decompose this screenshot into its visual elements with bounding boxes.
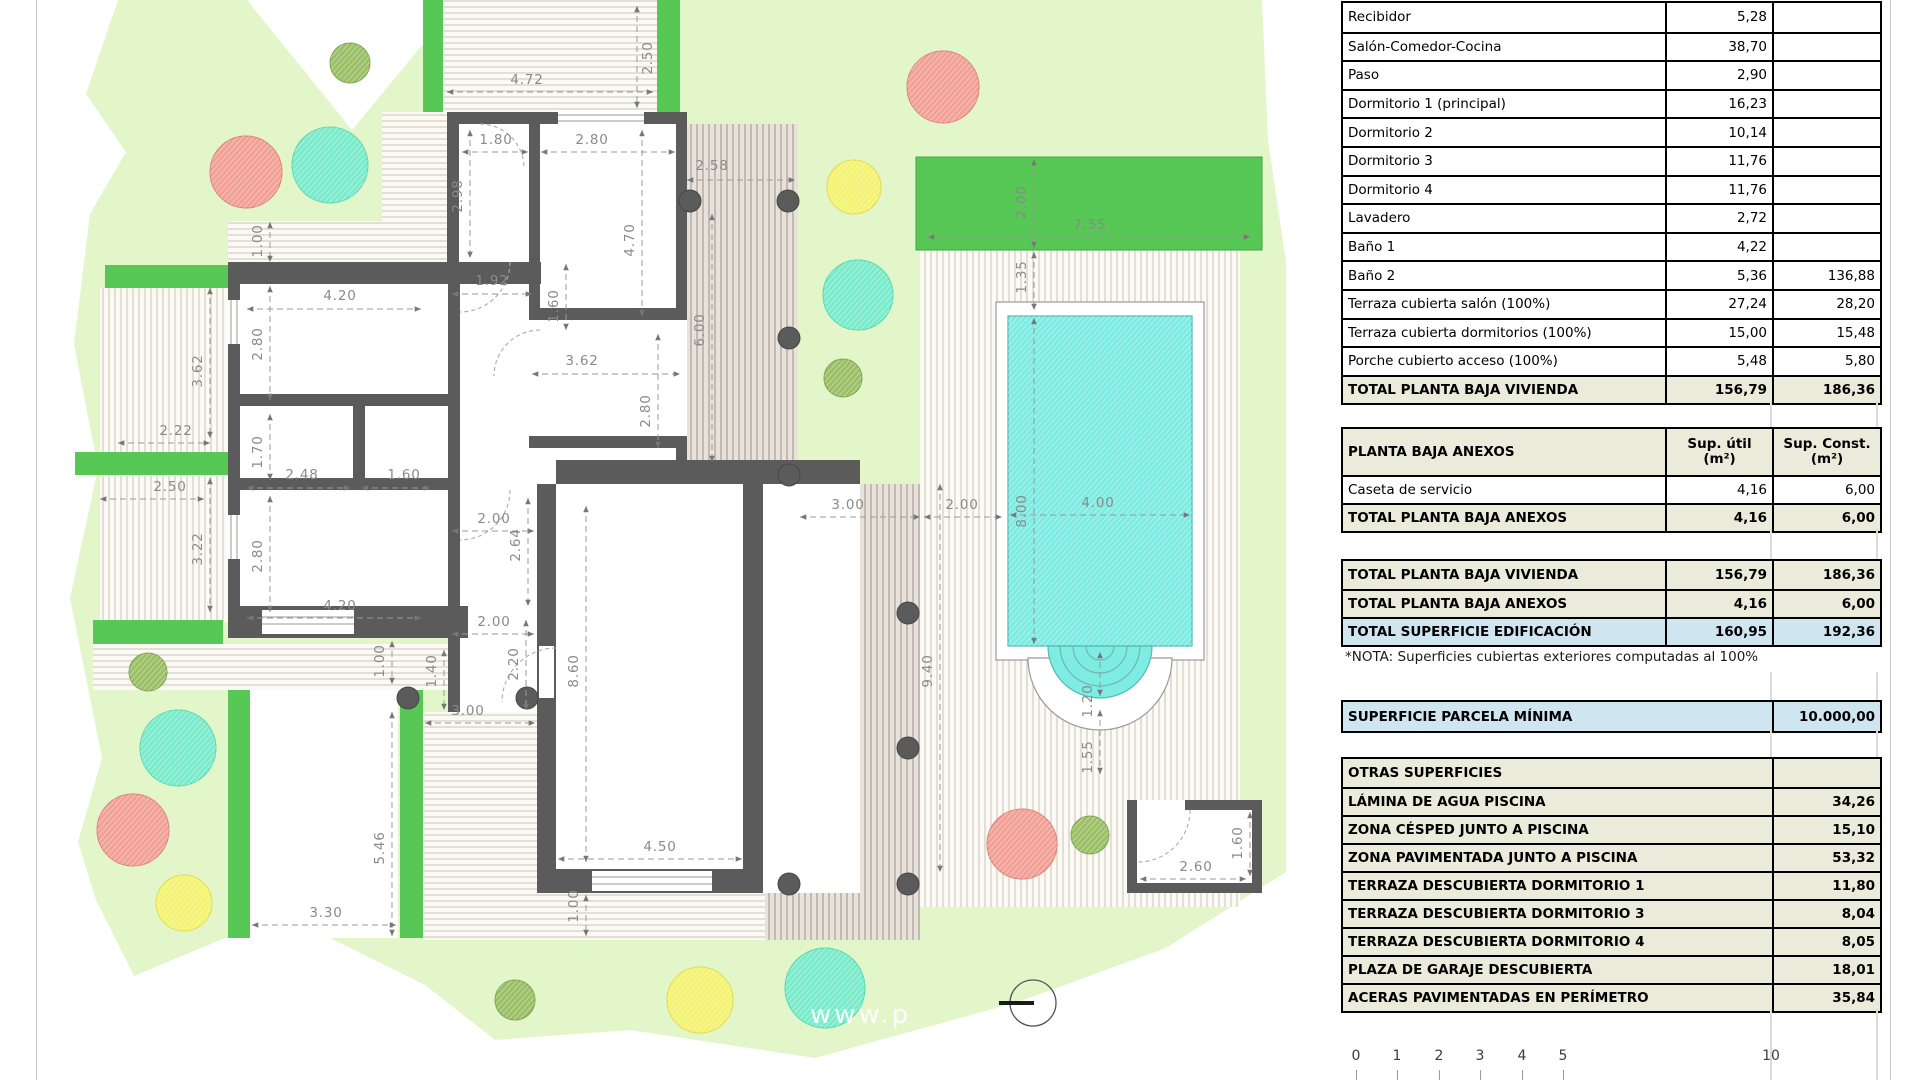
table-row: Recibidor5,28 (1343, 3, 1880, 32)
grid-line (1876, 529, 1878, 559)
dimension-label: 2.80 (250, 327, 266, 360)
frame-line-right (1890, 0, 1891, 1080)
grid-line (1876, 1009, 1878, 1080)
row-label: TOTAL PLANTA BAJA ANEXOS (1343, 591, 1665, 617)
grid-line (1770, 401, 1772, 427)
row-label: TOTAL SUPERFICIE EDIFICACIÓN (1343, 619, 1665, 645)
sup-const-value: 28,20 (1772, 291, 1880, 318)
scale-bar-tick: 2 (1427, 1048, 1451, 1064)
row-label: TERRAZA DESCUBIERTA DORMITORIO 4 (1343, 929, 1772, 955)
sup-util-value: 38,70 (1665, 34, 1772, 61)
dimension-label: 1.00 (372, 644, 388, 677)
sup-util-value: 2,72 (1665, 205, 1772, 232)
row-label: TERRAZA DESCUBIERTA DORMITORIO 1 (1343, 873, 1772, 899)
dimension-label: 2.98 (450, 179, 466, 212)
table-row: OTRAS SUPERFICIES (1343, 759, 1880, 787)
scale-bar-tick-mark (1480, 1070, 1481, 1080)
superficie-value: 34,26 (1772, 789, 1880, 815)
dimension-label: 3.30 (309, 905, 342, 921)
scale-bar-tick: 5 (1551, 1048, 1575, 1064)
table-row: Baño 25,36136,88 (1343, 260, 1880, 289)
dimension-label: 2.00 (945, 497, 978, 513)
table-planta-baja-vivienda: Recibidor5,28Salón-Comedor-Cocina38,70Pa… (1341, 1, 1882, 405)
grid-line (1876, 672, 1878, 700)
scale-bar-tick: 0 (1344, 1048, 1368, 1064)
scale-bar-tick-mark (1439, 1070, 1440, 1080)
row-label: SUPERFICIE PARCELA MÍNIMA (1343, 702, 1772, 731)
dimension-label: 2.50 (153, 479, 186, 495)
table-row: PLAZA DE GARAJE DESCUBIERTA18,01 (1343, 955, 1880, 983)
table-row: Terraza cubierta salón (100%)27,2428,20 (1343, 289, 1880, 318)
sup-util-value: 16,23 (1665, 91, 1772, 118)
sup-util-value: 4,16 (1665, 505, 1772, 531)
table-row: TOTAL PLANTA BAJA VIVIENDA156,79186,36 (1343, 561, 1880, 589)
dimension-label: 1.55 (1080, 740, 1096, 773)
row-label: Lavadero (1343, 205, 1665, 232)
row-label: Recibidor (1343, 3, 1665, 32)
sup-const-value: 6,00 (1772, 591, 1880, 617)
dimension-label: 2.00 (1014, 185, 1030, 218)
table-row: ACERAS PAVIMENTADAS EN PERÍMETRO35,84 (1343, 983, 1880, 1011)
sup-const-value (1772, 3, 1880, 32)
dimension-label: 2.50 (640, 41, 656, 74)
sup-util-value: 2,90 (1665, 62, 1772, 89)
dimension-label: 3.62 (565, 353, 598, 369)
sup-const-value (1772, 119, 1880, 146)
grid-line (1876, 729, 1878, 757)
sup-const-value: 186,36 (1772, 377, 1880, 404)
superficie-value: 15,10 (1772, 817, 1880, 843)
dimension-label: 1.60 (387, 467, 420, 483)
dimension-label: 2.80 (250, 539, 266, 572)
table-row: Dormitorio 210,14 (1343, 117, 1880, 146)
superficie-value (1772, 759, 1880, 787)
superficie-value: 11,80 (1772, 873, 1880, 899)
table-row: ZONA CÉSPED JUNTO A PISCINA15,10 (1343, 815, 1880, 843)
table-row: Paso2,90 (1343, 60, 1880, 89)
grid-line (1770, 672, 1772, 700)
superficie-value: 8,04 (1772, 901, 1880, 927)
dimension-label: 4.20 (323, 598, 356, 614)
superficie-value: 18,01 (1772, 957, 1880, 983)
dimension-label: 1.00 (250, 224, 266, 257)
parcela-value: 10.000,00 (1772, 702, 1880, 731)
scale-bar-tick-mark (1522, 1070, 1523, 1080)
superficie-value: 53,32 (1772, 845, 1880, 871)
sup-const-value: 15,48 (1772, 320, 1880, 347)
table-row: Dormitorio 1 (principal)16,23 (1343, 89, 1880, 118)
dimension-label: 4.20 (323, 288, 356, 304)
dimension-label: 8.60 (566, 654, 582, 687)
table-otras-superficies: OTRAS SUPERFICIESLÁMINA DE AGUA PISCINA3… (1341, 757, 1882, 1013)
scale-bar-tick-mark (1563, 1070, 1564, 1080)
row-label: Terraza cubierta salón (100%) (1343, 291, 1665, 318)
dimension-label: 9.40 (920, 654, 936, 687)
row-label: Terraza cubierta dormitorios (100%) (1343, 320, 1665, 347)
sup-const-value: 186,36 (1772, 561, 1880, 589)
sup-util-value: 4,22 (1665, 234, 1772, 261)
sup-const-value: 5,80 (1772, 348, 1880, 375)
note-text: *NOTA: Superficies cubiertas exteriores … (1345, 649, 1758, 665)
row-label: Baño 2 (1343, 262, 1665, 289)
table-row: Baño 14,22 (1343, 232, 1880, 261)
pergola (916, 157, 1262, 250)
dimension-label: 4.50 (643, 839, 676, 855)
garage-plaza (250, 690, 398, 938)
col-header-sup-util: Sup. útil(m²) (1665, 429, 1772, 475)
dimension-label: 4.70 (622, 223, 638, 256)
dimension-label: 1.60 (1230, 826, 1246, 859)
sup-util-value: 5,48 (1665, 348, 1772, 375)
row-label: Porche cubierto acceso (100%) (1343, 348, 1665, 375)
grid-line (1770, 1009, 1772, 1080)
row-label: PLAZA DE GARAJE DESCUBIERTA (1343, 957, 1772, 983)
row-label: TOTAL PLANTA BAJA VIVIENDA (1343, 377, 1665, 404)
sup-util-value: 27,24 (1665, 291, 1772, 318)
sup-const-value (1772, 205, 1880, 232)
dimension-label: 2.00 (477, 614, 510, 630)
dimension-label: 2.00 (477, 511, 510, 527)
table-row: ZONA PAVIMENTADA JUNTO A PISCINA53,32 (1343, 843, 1880, 871)
row-label: ACERAS PAVIMENTADAS EN PERÍMETRO (1343, 985, 1772, 1011)
scale-bar-tick-mark (1356, 1070, 1357, 1080)
sup-util-value: 4,16 (1665, 477, 1772, 503)
dimension-label: 1.20 (1080, 684, 1096, 717)
scale-bar-tick: 1 (1385, 1048, 1409, 1064)
scale-bar-tick-mark (1397, 1070, 1398, 1080)
row-label: Paso (1343, 62, 1665, 89)
row-label: Dormitorio 1 (principal) (1343, 91, 1665, 118)
dimension-label: 2.60 (1179, 859, 1212, 875)
grid-line (1770, 529, 1772, 559)
dimension-label: 6.00 (692, 313, 708, 346)
table-row: Porche cubierto acceso (100%)5,485,80 (1343, 346, 1880, 375)
sup-util-value: 156,79 (1665, 377, 1772, 404)
floor-plan-drawing: 2.504.721.802.802.984.702.581.004.202.80… (0, 0, 1340, 1080)
dimension-label: 1.60 (546, 289, 562, 322)
table-row: TERRAZA DESCUBIERTA DORMITORIO 38,04 (1343, 899, 1880, 927)
table-row: Lavadero2,72 (1343, 203, 1880, 232)
col-header-sup-const: Sup. Const.(m²) (1772, 429, 1880, 475)
row-label: OTRAS SUPERFICIES (1343, 759, 1772, 787)
dimension-label: 8.00 (1014, 494, 1030, 527)
sup-const-value (1772, 177, 1880, 204)
row-label: ZONA PAVIMENTADA JUNTO A PISCINA (1343, 845, 1772, 871)
row-label: TOTAL PLANTA BAJA VIVIENDA (1343, 561, 1665, 589)
sup-const-value: 6,00 (1772, 477, 1880, 503)
sup-const-value (1772, 34, 1880, 61)
table-resumen-superficies: TOTAL PLANTA BAJA VIVIENDA156,79186,36TO… (1341, 559, 1882, 647)
frame-line-left (36, 0, 37, 1080)
table-row: TOTAL SUPERFICIE EDIFICACIÓN160,95192,36 (1343, 617, 1880, 645)
site-plan-screenshot: 2.504.721.802.802.984.702.581.004.202.80… (0, 0, 1920, 1080)
dimension-label: 2.64 (508, 528, 524, 561)
dimension-label: 2.58 (695, 158, 728, 174)
dimension-label: 3.62 (190, 354, 206, 387)
row-label: Caseta de servicio (1343, 477, 1665, 503)
row-label: LÁMINA DE AGUA PISCINA (1343, 789, 1772, 815)
dimension-label: 1.35 (1014, 260, 1030, 293)
dimension-label: 1.00 (566, 889, 582, 922)
sup-util-value: 5,36 (1665, 262, 1772, 289)
dimension-label: 3.00 (451, 703, 484, 719)
row-label: TOTAL PLANTA BAJA ANEXOS (1343, 505, 1665, 531)
table-row: TOTAL PLANTA BAJA ANEXOS4,166,00 (1343, 503, 1880, 531)
table-row: Dormitorio 311,76 (1343, 146, 1880, 175)
superficie-value: 35,84 (1772, 985, 1880, 1011)
dimension-label: 1.70 (250, 435, 266, 468)
table-row: Salón-Comedor-Cocina38,70 (1343, 32, 1880, 61)
table-title: PLANTA BAJA ANEXOS (1343, 429, 1665, 475)
dimension-label: 4.00 (1081, 495, 1114, 511)
sup-util-value: 11,76 (1665, 177, 1772, 204)
sup-util-value: 5,28 (1665, 3, 1772, 32)
dimension-label: 3.22 (190, 532, 206, 565)
dimension-label: 2.80 (638, 394, 654, 427)
row-label: Dormitorio 4 (1343, 177, 1665, 204)
sup-const-value (1772, 91, 1880, 118)
grid-line (1770, 729, 1772, 757)
watermark: www.p (810, 1000, 911, 1030)
table-row: TOTAL PLANTA BAJA ANEXOS4,166,00 (1343, 589, 1880, 617)
table-row: LÁMINA DE AGUA PISCINA34,26 (1343, 787, 1880, 815)
dimension-label: 4.72 (510, 72, 543, 88)
grid-line (1876, 401, 1878, 427)
table-planta-baja-anexos: PLANTA BAJA ANEXOSSup. útil(m²)Sup. Cons… (1341, 427, 1882, 533)
table-row: TERRAZA DESCUBIERTA DORMITORIO 111,80 (1343, 871, 1880, 899)
dimension-label: 5.46 (372, 831, 388, 864)
dimension-label: 1.92 (475, 273, 508, 289)
dimension-label: 1.80 (479, 132, 512, 148)
table-header-row: PLANTA BAJA ANEXOSSup. útil(m²)Sup. Cons… (1343, 429, 1880, 475)
dimension-label: 2.20 (506, 647, 522, 680)
sup-util-value: 10,14 (1665, 119, 1772, 146)
row-label: Dormitorio 3 (1343, 148, 1665, 175)
row-label: TERRAZA DESCUBIERTA DORMITORIO 3 (1343, 901, 1772, 927)
sup-const-value: 6,00 (1772, 505, 1880, 531)
table-row: SUPERFICIE PARCELA MÍNIMA10.000,00 (1343, 702, 1880, 731)
table-row: TOTAL PLANTA BAJA VIVIENDA156,79186,36 (1343, 375, 1880, 404)
sup-util-value: 156,79 (1665, 561, 1772, 589)
row-label: ZONA CÉSPED JUNTO A PISCINA (1343, 817, 1772, 843)
dimension-label: 2.22 (159, 423, 192, 439)
table-row: Dormitorio 411,76 (1343, 175, 1880, 204)
sup-util-value: 11,76 (1665, 148, 1772, 175)
sup-util-value: 15,00 (1665, 320, 1772, 347)
sup-const-value: 136,88 (1772, 262, 1880, 289)
scale-bar-tick: 4 (1510, 1048, 1534, 1064)
sup-const-value (1772, 234, 1880, 261)
dimension-label: 2.80 (575, 132, 608, 148)
dimension-label: 7.55 (1073, 217, 1106, 233)
row-label: Salón-Comedor-Cocina (1343, 34, 1665, 61)
sup-const-value (1772, 148, 1880, 175)
dimension-label: 1.40 (424, 654, 440, 687)
dimension-label: 2.48 (285, 467, 318, 483)
table-row: Caseta de servicio4,166,00 (1343, 475, 1880, 503)
table-row: Terraza cubierta dormitorios (100%)15,00… (1343, 318, 1880, 347)
row-label: Dormitorio 2 (1343, 119, 1665, 146)
sup-util-value: 4,16 (1665, 591, 1772, 617)
dimension-label: 3.00 (831, 497, 864, 513)
sup-const-value: 192,36 (1772, 619, 1880, 645)
sup-const-value (1772, 62, 1880, 89)
table-row: TERRAZA DESCUBIERTA DORMITORIO 48,05 (1343, 927, 1880, 955)
scale-bar-tick: 3 (1468, 1048, 1492, 1064)
table-superficie-parcela-minima: SUPERFICIE PARCELA MÍNIMA10.000,00 (1341, 700, 1882, 733)
superficie-value: 8,05 (1772, 929, 1880, 955)
sup-util-value: 160,95 (1665, 619, 1772, 645)
row-label: Baño 1 (1343, 234, 1665, 261)
